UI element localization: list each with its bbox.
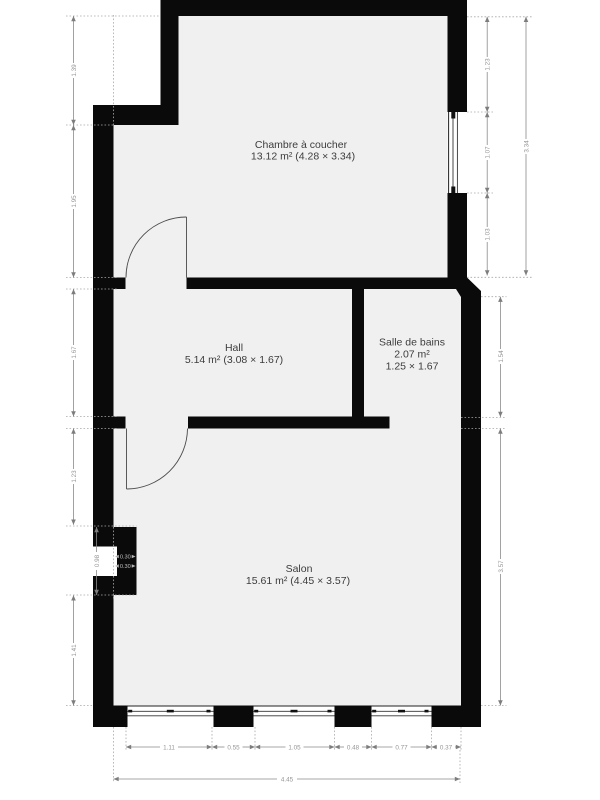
svg-text:1.67: 1.67 [71,346,78,359]
svg-text:15.61 m² (4.45 × 3.57): 15.61 m² (4.45 × 3.57) [246,575,350,587]
svg-text:0.30: 0.30 [120,555,131,561]
svg-text:1.54: 1.54 [498,350,505,363]
svg-text:4.45: 4.45 [281,777,294,784]
svg-text:1.05: 1.05 [288,745,301,752]
svg-text:Hall: Hall [225,342,243,354]
svg-text:Salle de bains: Salle de bains [379,337,445,349]
svg-text:2.07 m²: 2.07 m² [394,349,430,361]
svg-text:1.25 × 1.67: 1.25 × 1.67 [386,361,439,373]
svg-text:0.37: 0.37 [440,745,453,752]
svg-text:0.55: 0.55 [227,745,240,752]
svg-text:13.12 m² (4.28 × 3.34): 13.12 m² (4.28 × 3.34) [251,151,355,163]
svg-text:1.39: 1.39 [71,64,78,77]
svg-text:1.41: 1.41 [71,644,78,657]
svg-text:1.95: 1.95 [71,195,78,208]
svg-text:0.30: 0.30 [120,564,131,570]
svg-text:0.77: 0.77 [395,745,408,752]
svg-text:3.57: 3.57 [498,560,505,573]
svg-text:0.48: 0.48 [347,745,360,752]
svg-text:1.11: 1.11 [163,745,175,752]
svg-text:5.14 m² (3.08 × 1.67): 5.14 m² (3.08 × 1.67) [185,354,283,366]
svg-text:1.03: 1.03 [485,228,492,241]
svg-text:0.98: 0.98 [94,554,101,567]
svg-text:1.07: 1.07 [485,146,492,159]
svg-text:1.23: 1.23 [485,58,492,71]
svg-text:3.34: 3.34 [524,140,531,153]
svg-text:Chambre à coucher: Chambre à coucher [255,139,348,151]
svg-text:1.23: 1.23 [71,470,78,483]
svg-text:Salon: Salon [286,563,313,575]
